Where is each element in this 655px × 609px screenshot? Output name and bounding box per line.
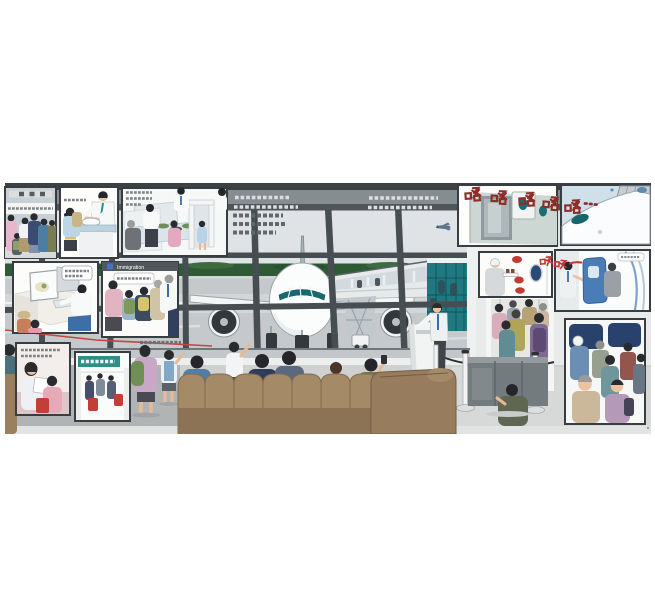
svg-text:Immigration: Immigration — [117, 265, 144, 271]
